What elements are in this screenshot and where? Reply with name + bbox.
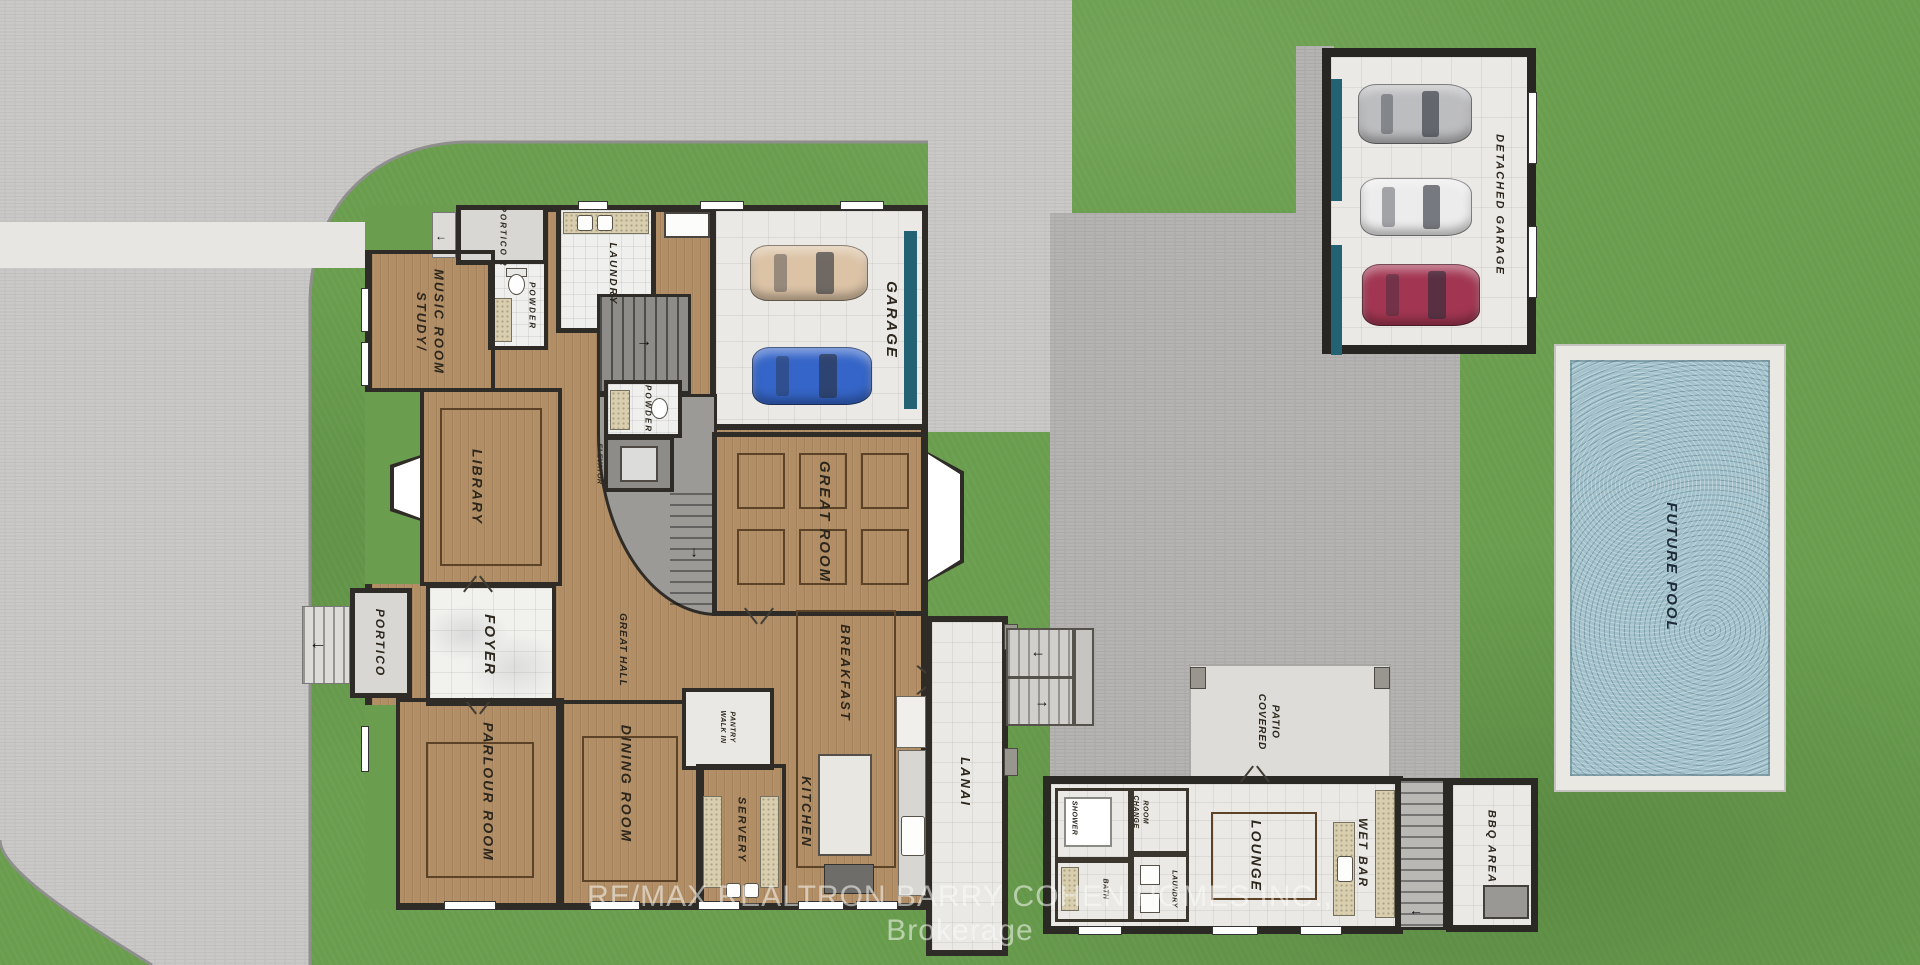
mudroom-closets [664, 212, 710, 238]
bbq-counter [1483, 885, 1529, 919]
powder-hall-label: POWDER [642, 385, 653, 433]
laundry-main-label: LAUNDRY [605, 243, 619, 306]
bbq-area-label: BBQ AREA [1484, 810, 1499, 884]
lounge-double-door [1238, 766, 1272, 782]
room-library [420, 388, 562, 586]
library-bay-window [390, 454, 424, 522]
window-south-1 [444, 901, 496, 910]
arrow-left-icon: ← [1409, 902, 1423, 918]
library-label: LIBRARY [468, 449, 487, 525]
powder-hall-vanity [610, 390, 630, 430]
arrow-left-icon: ← [435, 229, 447, 243]
floor-plan-rendering: PORTICO 2 POWDER LAUNDRY STUDY/ MUSIC RO… [0, 0, 1920, 965]
arrow-down-icon: ↓ [690, 544, 698, 561]
change-room-label: CHANGE ROOM [1131, 795, 1150, 828]
room-shower [1055, 788, 1131, 860]
patio-pillar-1 [1190, 667, 1206, 689]
laundry-sink-2 [597, 215, 613, 231]
library-rug [440, 408, 542, 566]
laundry-sink [577, 215, 593, 231]
car-blue-sedan [752, 347, 872, 405]
car-red-convertible [1362, 264, 1480, 326]
exterior-stair-landing [1074, 628, 1094, 726]
detached-garage-label: DETACHED GARAGE [1492, 134, 1507, 276]
powder-vanity [494, 298, 512, 342]
detached-garage-door-2 [1331, 245, 1342, 355]
window-study-1 [361, 288, 369, 332]
great-room-label: GREAT ROOM [814, 461, 834, 583]
great-hall-label: GREAT HALL [615, 613, 629, 687]
window-north-3 [840, 201, 884, 210]
breakfast-label: BREAKFAST [836, 624, 854, 721]
study-label: STUDY/ MUSIC ROOM [412, 269, 447, 375]
window-north-2 [700, 201, 744, 210]
toilet-icon-2 [651, 398, 668, 419]
room-powder-main [488, 260, 548, 350]
wet-bar-label: WET BAR [1355, 818, 1371, 888]
dining-label: DINING ROOM [617, 725, 636, 843]
shower-label: SHOWER [1069, 801, 1078, 836]
brokerage-watermark: RE/MAX REALTRON BARRY COHEN HOMES INC., … [530, 880, 1390, 948]
covered-patio-slab [1190, 665, 1390, 783]
kitchen-label: KITCHEN [797, 776, 815, 848]
car-tan-sedan [750, 245, 868, 301]
window-north-1 [578, 201, 608, 210]
toilet-icon [508, 274, 525, 295]
servery-counter-east [760, 796, 779, 888]
patio-pillar-2 [1374, 667, 1390, 689]
window-detached-garage-1 [1528, 92, 1537, 164]
kitchen-fridge [896, 696, 926, 748]
servery-counter-west [703, 796, 722, 888]
portico-2-label: PORTICO 2 [497, 207, 508, 268]
parlour-label: PARLOUR ROOM [479, 722, 498, 862]
kitchen-sink [901, 816, 925, 856]
pantry-label: WALK IN PANTRY [718, 710, 737, 743]
great-room-bay-window [924, 450, 964, 584]
arrow-right-icon: → [1035, 694, 1050, 711]
foyer-label: FOYER [479, 614, 499, 676]
elevator-label: ELEVATOR [594, 444, 603, 485]
stair-landing-divider [1008, 676, 1072, 679]
detached-garage-door-1 [1331, 79, 1342, 201]
window-parlour-1 [361, 726, 369, 772]
great-room-door [742, 608, 776, 624]
servery-label: SERVERY [734, 797, 749, 863]
elevator-cab [620, 446, 658, 482]
arrow-left-icon: ← [1031, 644, 1046, 661]
car-white-sedan [1360, 178, 1472, 236]
foyer-double-door-north [461, 576, 495, 592]
window-detached-garage-2 [1528, 226, 1537, 298]
window-study-2 [361, 342, 369, 386]
car-silver-sedan [1358, 84, 1472, 144]
grass-notch-sw [365, 705, 396, 910]
elevator-shaft [604, 436, 674, 492]
powder-main-label: POWDER [526, 282, 537, 330]
future-pool-label: FUTURE POOL [1661, 502, 1681, 632]
garage-door-panel [904, 231, 917, 409]
kitchen-island [818, 754, 872, 856]
arrow-left-icon: ← [309, 633, 327, 654]
portico-label: PORTICO [372, 609, 388, 677]
arrow-right-icon: → [636, 333, 652, 351]
lanai-pillar-2 [1004, 748, 1018, 776]
lanai-label: LANAI [956, 757, 974, 807]
garage-label: GARAGE [881, 281, 901, 359]
wet-bar-sink [1337, 856, 1353, 882]
covered-patio-label: COVERED PATIO [1255, 694, 1282, 750]
